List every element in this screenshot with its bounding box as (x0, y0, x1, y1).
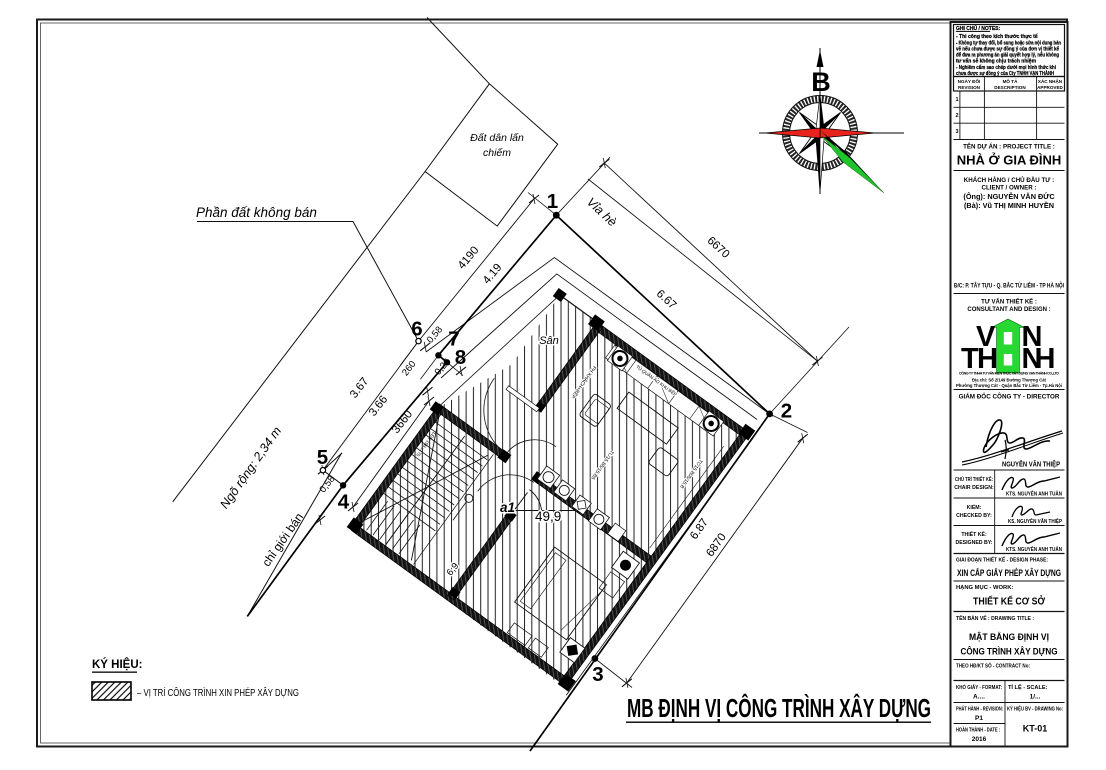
svg-text:6.87: 6.87 (688, 517, 711, 542)
svg-text:REVISION: REVISION (958, 85, 981, 90)
svg-text:KS. NGUYỄN VĂN THIỆP: KS. NGUYỄN VĂN THIỆP (1008, 517, 1062, 525)
svg-text:vẽ nếu chưa được sự đồng ý của: vẽ nếu chưa được sự đồng ý của đơn vị th… (956, 46, 1059, 53)
svg-text:6: 6 (411, 318, 422, 341)
svg-text:Địa chỉ: Số 2/149 Đường Thượng: Địa chỉ: Số 2/149 Đường Thượng Cát (972, 378, 1047, 383)
svg-text:Đất dân lấn: Đất dân lấn (470, 132, 524, 144)
svg-text:TỈ LỆ - SCALE:: TỈ LỆ - SCALE: (1008, 683, 1048, 691)
svg-text:KTS. NGUYỄN ANH TUẤN: KTS. NGUYỄN ANH TUẤN (1006, 546, 1062, 553)
svg-text:TÊN BẢN VẾ : DRAWING TITLE :: TÊN BẢN VẾ : DRAWING TITLE : (956, 614, 1034, 622)
svg-text:- Thi công theo kích thước thự: - Thi công theo kích thước thực tế (956, 33, 1038, 40)
svg-text:CHECKED BY:: CHECKED BY: (956, 513, 992, 519)
svg-text:1/...: 1/... (1030, 694, 1041, 701)
svg-text:TƯ VẤN THIẾT KẾ :: TƯ VẤN THIẾT KẾ : (981, 299, 1037, 306)
svg-text:CÔNG TY TNHH TƯ VẤN KIẾN TRÚC: CÔNG TY TNHH TƯ VẤN KIẾN TRÚC XÂY DỰNG V… (959, 371, 1059, 376)
svg-text:4.19: 4.19 (481, 262, 505, 287)
svg-text:H: H (977, 343, 998, 375)
svg-text:P1: P1 (975, 715, 983, 722)
svg-text:chỉ giới bán: chỉ giới bán (259, 510, 306, 569)
svg-text:NHÀ Ở GIA ĐÌNH: NHÀ Ở GIA ĐÌNH (957, 153, 1062, 168)
svg-text:tư vấn sẽ không chịu trách nhi: tư vấn sẽ không chịu trách nhiệm (956, 58, 1037, 65)
svg-text:1: 1 (547, 190, 558, 213)
svg-text:3: 3 (592, 663, 603, 686)
svg-text:CLIENT / OWNER :: CLIENT / OWNER : (982, 185, 1037, 192)
svg-text:3: 3 (956, 129, 959, 135)
svg-text:MB ĐỊNH VỊ CÔNG TRÌNH XÂY DỰNG: MB ĐỊNH VỊ CÔNG TRÌNH XÂY DỰNG (627, 693, 931, 723)
svg-text:CHAIR DESIGN:: CHAIR DESIGN: (954, 485, 994, 491)
svg-text:KT-01: KT-01 (1023, 724, 1048, 734)
svg-text:NGUYỄN VĂN THIỆP: NGUYỄN VĂN THIỆP (1002, 460, 1060, 469)
svg-text:6870: 6870 (704, 531, 729, 559)
svg-text:Sân: Sân (539, 335, 559, 347)
svg-text:THEO HĐ/KT SỐ - CONTRACT No:: THEO HĐ/KT SỐ - CONTRACT No: (956, 663, 1030, 670)
svg-text:3.67: 3.67 (348, 376, 371, 401)
svg-text:PHÁT HÀNH - REVISION:: PHÁT HÀNH - REVISION: (956, 706, 1003, 713)
svg-text:8: 8 (455, 346, 466, 369)
svg-text:6670: 6670 (705, 235, 732, 261)
svg-text:6.67: 6.67 (654, 288, 679, 312)
svg-text:GIAI ĐOẠN THIẾT KẾ - DESIGN PH: GIAI ĐOẠN THIẾT KẾ - DESIGN PHASE: (956, 557, 1048, 564)
svg-text:HẠNG MỤC - WORK:: HẠNG MỤC - WORK: (956, 585, 1013, 591)
svg-text:MẬT BẰNG ĐỊNH VỊ: MẬT BẰNG ĐỊNH VỊ (969, 631, 1049, 643)
svg-text:- Không tự thay đổi, bổ sung h: - Không tự thay đổi, bổ sung hoặc sửa nộ… (956, 40, 1061, 47)
svg-text:APPROVED: APPROVED (1037, 85, 1063, 90)
svg-text:Phường Thượng Cát - Quận Bắc T: Phường Thượng Cát - Quận Bắc Từ Liêm - T… (956, 383, 1062, 388)
svg-text:CONSULTANT AND DESIGN :: CONSULTANT AND DESIGN : (967, 307, 1050, 313)
svg-text:KTS. NGUYỄN ANH TUẤN: KTS. NGUYỄN ANH TUẤN (1006, 491, 1062, 498)
svg-text:để đưa ra phương án giải quyết: để đưa ra phương án giải quyết hợp lý, n… (956, 52, 1059, 59)
svg-text:- Nghiêm cấm sao chép dưới mọi: - Nghiêm cấm sao chép dưới mọi hình thức… (956, 64, 1057, 71)
svg-text:DESCRIPTION: DESCRIPTION (994, 85, 1026, 90)
svg-text:KIỂM:: KIỂM: (967, 504, 982, 511)
svg-text:THIẾT KẾ CƠ SỞ: THIẾT KẾ CƠ SỞ (973, 595, 1045, 608)
svg-text:(Ông): NGUYỄN VĂN ĐỨC: (Ông): NGUYỄN VĂN ĐỨC (963, 192, 1055, 201)
svg-text:CÔNG TRÌNH XÂY DỰNG: CÔNG TRÌNH XÂY DỰNG (961, 646, 1058, 658)
svg-text:4: 4 (338, 491, 350, 514)
svg-text:B: B (811, 67, 831, 97)
svg-text:2016: 2016 (972, 736, 987, 743)
svg-text:KHỔ GIẤY - FORMAT:: KHỔ GIẤY - FORMAT: (956, 684, 1002, 691)
svg-text:A....: A.... (973, 694, 985, 701)
svg-text:chiếm: chiếm (483, 147, 511, 159)
svg-text:DESIGNED BY:: DESIGNED BY: (955, 540, 992, 546)
svg-text:5: 5 (317, 446, 328, 469)
svg-text:KÝ HIỆU BV - DRAWING No:: KÝ HIỆU BV - DRAWING No: (1007, 705, 1063, 713)
svg-text:TÊN DỰ ÁN : PROJECT TITLE :: TÊN DỰ ÁN : PROJECT TITLE : (963, 143, 1055, 151)
svg-text:3660: 3660 (390, 408, 415, 436)
svg-text:H: H (1035, 343, 1056, 375)
svg-text:2: 2 (956, 113, 959, 119)
svg-text:KHÁCH HÀNG / CHỦ ĐẦU TƯ :: KHÁCH HÀNG / CHỦ ĐẦU TƯ : (964, 177, 1054, 184)
svg-text:CHỦ TRÌ THIẾT KẾ:: CHỦ TRÌ THIẾT KẾ: (955, 475, 993, 483)
svg-text:1: 1 (956, 97, 959, 103)
svg-text:XÁC NHẬN: XÁC NHẬN (1038, 78, 1063, 84)
svg-text:HOÀN THÀNH - DATE :: HOÀN THÀNH - DATE : (956, 727, 1000, 734)
svg-text:Phần đất không bán: Phần đất không bán (196, 205, 317, 220)
svg-text:(Bà): Vũ THỊ MINH HUYỀN: (Bà): Vũ THỊ MINH HUYỀN (964, 200, 1054, 210)
svg-text:3.66: 3.66 (367, 394, 390, 419)
svg-text:0,58: 0,58 (318, 474, 338, 495)
svg-text:0,58: 0,58 (425, 324, 445, 345)
svg-text:Ngõ rộng: 2,34 m: Ngõ rộng: 2,34 m (217, 424, 284, 511)
svg-text:XIN CẤP GIẤY PHÉP XÂY DỰNG: XIN CẤP GIẤY PHÉP XÂY DỰNG (957, 567, 1061, 578)
svg-text:KÝ HIỆU:: KÝ HIỆU: (92, 658, 142, 671)
svg-text:2: 2 (781, 400, 792, 423)
svg-text:MÔ TẢ: MÔ TẢ (1003, 77, 1018, 84)
svg-text:NGÀY ĐỔI: NGÀY ĐỔI (958, 78, 981, 84)
svg-text:Đ/C: P. TÂY TỰU - Q. BẮC TỪ LI: Đ/C: P. TÂY TỰU - Q. BẮC TỪ LIÊM - TP HÀ… (954, 281, 1064, 290)
svg-text:a1: a1 (500, 500, 515, 515)
svg-text:49,9: 49,9 (535, 509, 561, 524)
svg-text:– VỊ TRÍ CÔNG TRÌNH XIN PHÉP X: – VỊ TRÍ CÔNG TRÌNH XIN PHÉP XÂY DỰNG (137, 686, 299, 699)
svg-text:THIẾT KẾ:: THIẾT KẾ: (961, 531, 987, 538)
